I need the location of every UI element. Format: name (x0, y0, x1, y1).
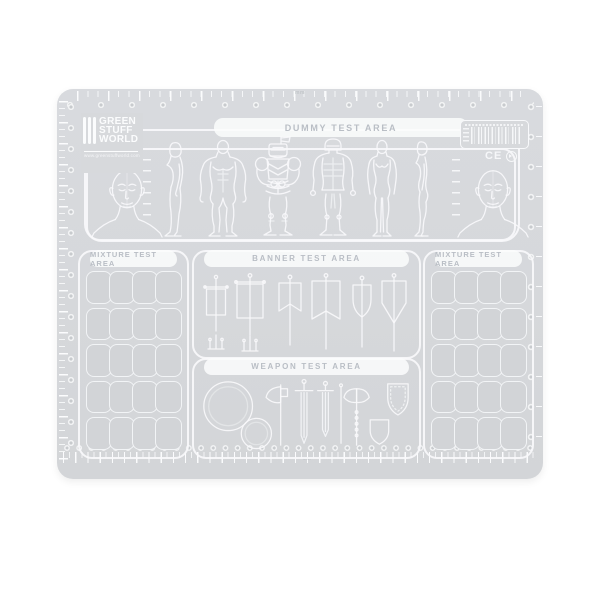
product-image: mm cm GREEN STUFF WORLD www.greenstuffwo… (0, 0, 600, 600)
logo-line3: WORLD (99, 135, 138, 144)
top-holes-row (66, 101, 534, 109)
mixture-row (87, 308, 180, 341)
mixture-cell (431, 271, 457, 304)
mixture-left-label: MIXTURE TEST AREA (90, 250, 177, 267)
painting-mat: mm cm GREEN STUFF WORLD www.greenstuffwo… (57, 89, 543, 479)
mixture-cell (500, 344, 526, 377)
mixture-cell (155, 381, 181, 414)
logo-website: www.greenstuffworld.com (84, 151, 138, 158)
logo-text: GREEN STUFF WORLD (99, 117, 138, 173)
mixture-cell (500, 271, 526, 304)
mixture-cell (86, 381, 112, 414)
mixture-cell (431, 381, 457, 414)
dummy-test-area-figure-box (86, 148, 516, 241)
banner-shapes-icon (200, 273, 411, 353)
mixture-cell (431, 308, 457, 341)
mixture-cell (500, 308, 526, 341)
mixture-right-label: MIXTURE TEST AREA (435, 250, 522, 267)
mixture-row (87, 271, 180, 304)
recycle-icon (506, 151, 517, 162)
mixture-cell (431, 417, 457, 450)
mixture-cell (500, 381, 526, 414)
mixture-cell (86, 271, 112, 304)
weapon-shapes-icon (200, 379, 411, 451)
mixture-test-area-right: MIXTURE TEST AREA (423, 250, 534, 459)
mixture-test-area-left: MIXTURE TEST AREA (78, 250, 189, 459)
mixture-cell (86, 308, 112, 341)
mixture-cell (155, 344, 181, 377)
mixture-cell (155, 271, 181, 304)
weapon-test-area: WEAPON TEST AREA (192, 358, 421, 459)
mixture-cell (155, 417, 181, 450)
mixture-grid-left (87, 271, 180, 450)
mixture-row (432, 308, 525, 341)
mixture-row (87, 344, 180, 377)
right-ruler-ticks (536, 103, 542, 461)
mixture-row (87, 417, 180, 450)
mixture-row (87, 381, 180, 414)
mixture-cell (86, 417, 112, 450)
barcode-caption (465, 124, 524, 126)
mixture-cell (155, 308, 181, 341)
mixture-grid-right (432, 271, 525, 450)
ce-mark: CE (485, 150, 502, 162)
banner-label: BANNER TEST AREA (204, 250, 409, 267)
mixture-cell (86, 344, 112, 377)
mixture-row (432, 381, 525, 414)
barcode-bars-icon (471, 127, 522, 144)
certification-marks: CE (485, 150, 517, 162)
barcode-digits (463, 128, 469, 144)
mixture-cell (500, 417, 526, 450)
left-holes-column (67, 103, 75, 461)
top-ruler-unit-label: mm (295, 90, 305, 96)
mixture-row (432, 271, 525, 304)
logo-bars-icon (83, 117, 96, 173)
mixture-cell (431, 344, 457, 377)
mixture-row (432, 417, 525, 450)
dummy-test-area-label: DUMMY TEST AREA (214, 118, 468, 137)
barcode (460, 120, 529, 149)
green-stuff-world-logo: GREEN STUFF WORLD www.greenstuffworld.co… (81, 113, 143, 173)
banner-test-area: BANNER TEST AREA (192, 250, 421, 359)
mixture-row (432, 344, 525, 377)
weapon-label: WEAPON TEST AREA (204, 358, 409, 375)
